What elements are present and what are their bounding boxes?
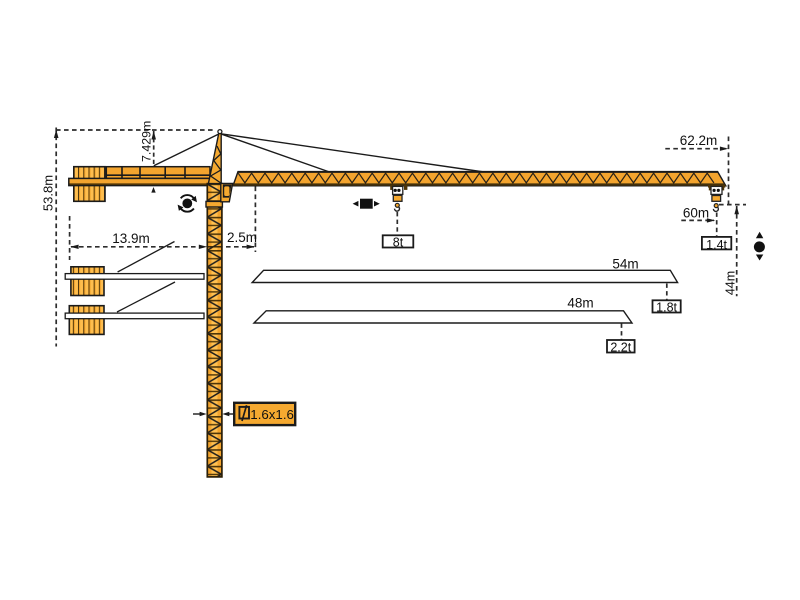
svg-text:2.5m: 2.5m	[227, 230, 257, 245]
svg-text:1.8t: 1.8t	[656, 300, 677, 314]
svg-text:2.2t: 2.2t	[610, 340, 631, 354]
svg-text:60m: 60m	[683, 206, 709, 221]
svg-text:62.2m: 62.2m	[680, 133, 718, 148]
svg-text:8t: 8t	[393, 235, 404, 249]
svg-text:54m: 54m	[612, 256, 638, 271]
svg-text:44m: 44m	[723, 271, 737, 295]
svg-text:1.6x1.6: 1.6x1.6	[250, 407, 294, 422]
svg-text:48m: 48m	[567, 296, 593, 311]
svg-text:53.8m: 53.8m	[41, 175, 56, 211]
svg-text:1.4t: 1.4t	[706, 238, 727, 252]
svg-text:7.429m: 7.429m	[139, 121, 153, 162]
svg-text:13.9m: 13.9m	[112, 231, 150, 246]
